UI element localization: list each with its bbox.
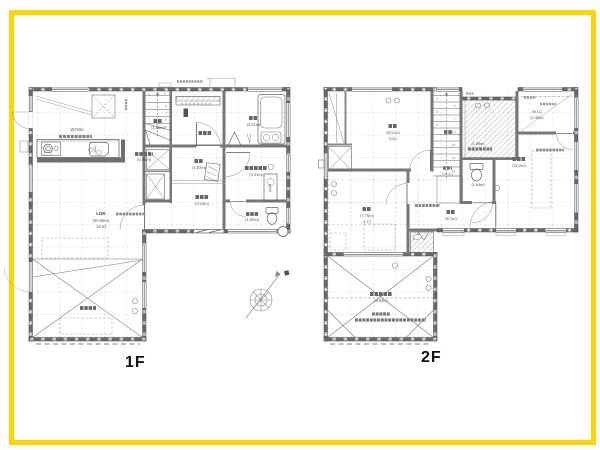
svg-text:(11.2m): (11.2m) [512,163,526,168]
svg-text:(2.48m): (2.48m) [530,116,544,120]
svg-text:W900: W900 [268,184,272,193]
svg-text:(9.93m): (9.93m) [374,298,388,303]
svg-text:5.5J: 5.5J [389,136,397,141]
svg-text:4.7J: 4.7J [363,219,371,224]
svg-text:W2550: W2550 [70,127,84,132]
svg-text:(9.11m): (9.11m) [386,130,400,135]
svg-text:(0.83m): (0.83m) [137,157,151,162]
svg-text:(1.66m): (1.66m) [471,142,485,146]
svg-text:2F: 2F [421,349,442,366]
svg-text:(7.75m): (7.75m) [360,213,374,218]
svg-text:18.5J: 18.5J [96,224,106,229]
svg-text:W.I.C: W.I.C [532,109,542,114]
svg-text:11: 11 [452,156,455,160]
svg-text:CH=1.2: CH=1.2 [443,172,454,176]
svg-text:(1.66m): (1.66m) [151,125,165,130]
svg-text:(3.31m): (3.31m) [249,172,263,177]
svg-text:(1.60m): (1.60m) [245,217,259,222]
svg-text:1F: 1F [125,354,146,371]
svg-text:LDK: LDK [96,211,106,216]
svg-text:(8.1m): (8.1m) [445,216,457,221]
svg-text:(3.10m): (3.10m) [195,201,209,206]
svg-text:10: 10 [452,143,456,147]
svg-text:(30.66m): (30.66m) [93,218,110,223]
svg-text:(1.64m): (1.64m) [471,183,485,187]
svg-text:(3.31m): (3.31m) [247,122,261,127]
svg-text:(1.87m): (1.87m) [192,165,206,170]
